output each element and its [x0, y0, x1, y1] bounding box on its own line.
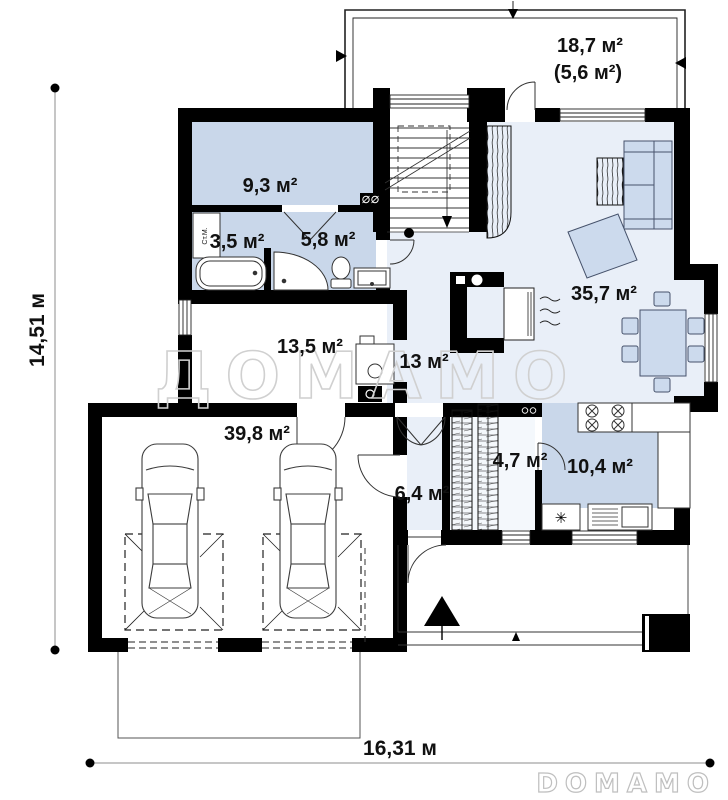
toilet	[331, 257, 351, 288]
label-boiler-room: 13,5 м²	[277, 336, 343, 358]
width-dimension-label: 16,31 м	[363, 737, 437, 760]
porch-column	[642, 614, 690, 652]
watermark-text: ДОМАМО	[155, 340, 582, 414]
entrance-triangle-marker	[424, 596, 460, 626]
kitchen-counter-top	[632, 403, 690, 432]
label-shower-room: 5,8 м²	[301, 229, 356, 251]
window-living-top	[560, 109, 645, 121]
label-terrace-sub: (5,6 м²)	[554, 62, 622, 84]
entry-floor	[407, 417, 442, 530]
label-bedroom: 9,3 м²	[243, 175, 298, 197]
stove	[578, 403, 632, 432]
label-washing-machine: Ст.М.	[202, 227, 209, 244]
label-garage: 39,8 м²	[224, 423, 290, 445]
terrace-tick-top	[508, 9, 518, 19]
tv-dresser-hatched	[597, 158, 623, 205]
label-wardrobe: 4,7 м²	[493, 450, 548, 472]
vent-box-bedroom	[360, 193, 381, 206]
window-stairwell-top	[390, 95, 469, 108]
sofa	[624, 141, 672, 229]
stairs-post-dot	[404, 228, 414, 238]
bathtub	[196, 257, 266, 290]
porch	[365, 545, 690, 652]
label-hall: 13 м²	[399, 351, 449, 373]
dimension-left: 14,51 м	[26, 84, 60, 655]
label-living-room: 35,7 м²	[571, 283, 637, 305]
hall-closet-hatched	[487, 126, 511, 238]
car	[136, 444, 204, 618]
fridge	[588, 504, 652, 530]
label-kitchen: 10,4 м²	[567, 456, 633, 478]
porch-step-tick	[512, 632, 520, 641]
window-bottom-a	[502, 531, 530, 544]
car	[274, 444, 342, 618]
dimension-bottom: 16,31 м	[86, 737, 715, 768]
garage-content	[118, 444, 361, 738]
door-balcony	[507, 82, 535, 110]
door-main-entrance	[408, 537, 446, 583]
kitchen-counter-right	[658, 432, 690, 508]
floor-plan-svg: ДОМАМО 14,51 м 16,31 м 18,7 м² (5,6 м²) …	[0, 0, 728, 800]
window-left-boiler	[179, 300, 191, 335]
window-bay-right	[705, 314, 717, 382]
sink-asterisk-symbol: ✳	[555, 510, 568, 527]
depth-dimension-label: 14,51 м	[26, 293, 49, 367]
floor-plan-page: ДОМАМО 14,51 м 16,31 м 18,7 м² (5,6 м²) …	[0, 0, 728, 800]
driveway-apron	[118, 652, 360, 738]
window-bottom-b	[572, 531, 637, 544]
dining-table	[640, 310, 686, 376]
label-terrace: 18,7 м²	[557, 35, 623, 57]
sink-shower-room	[354, 268, 390, 288]
stairs	[385, 126, 470, 238]
label-entry: 6,4 м²	[395, 483, 450, 505]
label-bathroom: 3,5 м²	[210, 231, 265, 253]
brand-logo: DOMAMO	[536, 769, 716, 799]
